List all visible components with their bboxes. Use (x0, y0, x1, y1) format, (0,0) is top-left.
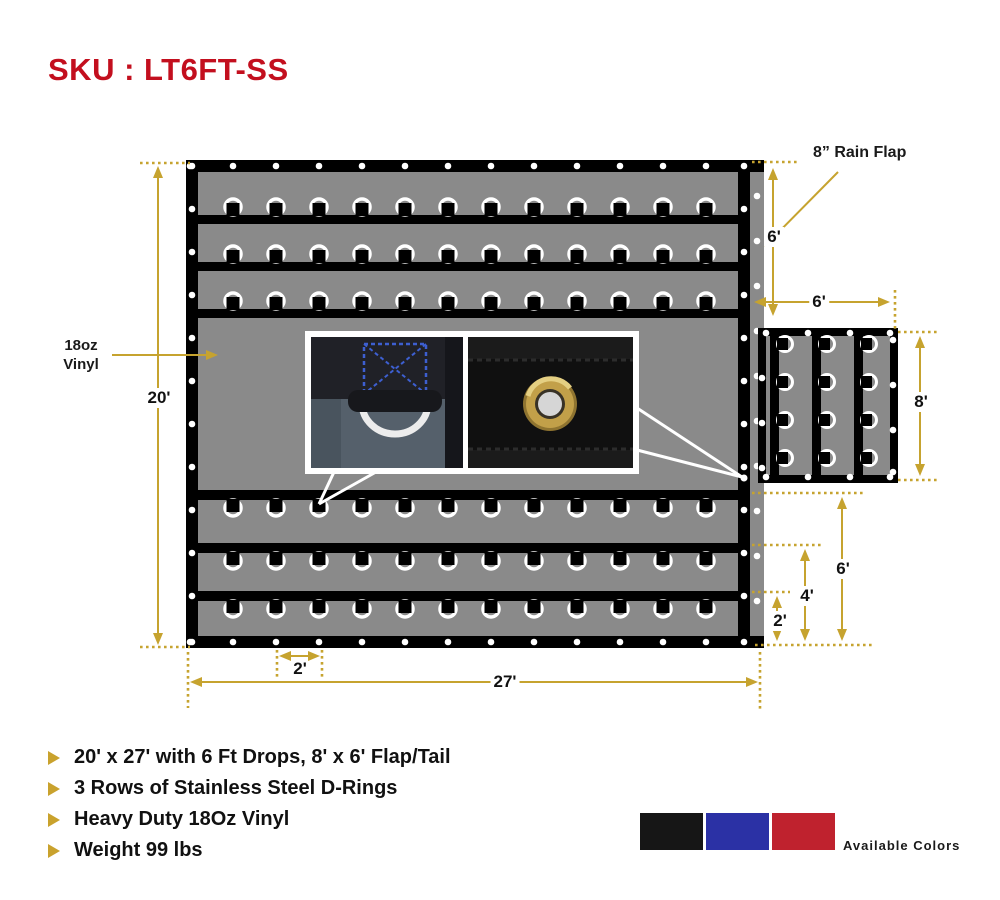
grommet (316, 639, 323, 646)
d-ring-tab (270, 552, 283, 565)
d-ring-tab (614, 203, 627, 216)
feature-text: 3 Rows of Stainless Steel D-Rings (74, 777, 397, 800)
grommet (847, 474, 854, 481)
grommet (741, 163, 748, 170)
dim-ring-spacing: 2' (290, 659, 310, 679)
grommet (741, 464, 748, 471)
grommet (754, 283, 761, 290)
d-ring-tab (700, 552, 713, 565)
grommet (741, 550, 748, 557)
grommet (890, 337, 897, 344)
d-ring-tab (528, 600, 541, 613)
grommet (189, 593, 196, 600)
d-ring-tab (571, 203, 584, 216)
grommet (230, 163, 237, 170)
arrowhead (915, 336, 925, 348)
d-ring-tab (700, 297, 713, 310)
d-ring-tab (270, 297, 283, 310)
grommet (189, 550, 196, 557)
grommet (741, 475, 748, 482)
vinyl-label-line1: 18oz (44, 336, 118, 355)
feature-item: Heavy Duty 18Oz Vinyl (48, 804, 451, 835)
grommet (359, 639, 366, 646)
dim-flap-height: 8' (911, 392, 931, 412)
grommet (890, 427, 897, 434)
d-ring-tab (485, 600, 498, 613)
grommet (189, 507, 196, 514)
d-ring-tab (777, 452, 788, 464)
d-ring-tab (270, 499, 283, 512)
d-ring-tab (399, 250, 412, 263)
d-ring-tab (657, 600, 670, 613)
grommet (703, 639, 710, 646)
grommet (741, 421, 748, 428)
feature-item: 3 Rows of Stainless Steel D-Rings (48, 773, 451, 804)
grommet (741, 335, 748, 342)
arrowhead (800, 549, 810, 561)
d-ring-tab (356, 297, 369, 310)
grommet (359, 163, 366, 170)
vinyl-label: 18oz Vinyl (44, 336, 118, 374)
d-ring-tab (313, 250, 326, 263)
d-ring-tab (657, 499, 670, 512)
feature-text: 20' x 27' with 6 Ft Drops, 8' x 6' Flap/… (74, 746, 451, 769)
grommet (531, 639, 538, 646)
d-ring-tab (861, 376, 872, 388)
d-ring-tab (227, 600, 240, 613)
dim-flap-drop: 6' (764, 227, 784, 247)
d-ring-tab (861, 452, 872, 464)
d-ring-tab (227, 203, 240, 216)
d-ring-tab (442, 600, 455, 613)
feature-text: Weight 99 lbs (74, 839, 203, 862)
d-ring-tab (528, 297, 541, 310)
grommet (741, 249, 748, 256)
arrowhead (768, 168, 778, 180)
d-ring-tab (485, 203, 498, 216)
d-ring-tab (356, 250, 369, 263)
grommet (189, 421, 196, 428)
product-diagram-page: SKU : LT6FT-SS (0, 0, 1000, 900)
grommet (741, 593, 748, 600)
rain-flap-label: 8” Rain Flap (813, 144, 906, 162)
grommet (887, 330, 894, 337)
grommet (754, 193, 761, 200)
d-ring-tab (227, 250, 240, 263)
arrowhead (878, 297, 890, 307)
d-ring-tab (485, 250, 498, 263)
d-ring-tab (571, 552, 584, 565)
grommet (617, 639, 624, 646)
d-ring-tab (614, 250, 627, 263)
d-ring-tab (528, 499, 541, 512)
d-ring-tab (657, 203, 670, 216)
arrowhead (153, 633, 163, 645)
arrow-bullet-icon (48, 782, 60, 796)
grommet-photo (468, 337, 633, 468)
grommet (741, 378, 748, 385)
grommet (617, 163, 624, 170)
d-ring-tab (399, 203, 412, 216)
strip (198, 262, 738, 271)
d-ring-tab (356, 203, 369, 216)
arrowhead (768, 304, 778, 316)
vinyl-label-line2: Vinyl (44, 355, 118, 374)
d-ring-tab (313, 203, 326, 216)
feature-item: 20' x 27' with 6 Ft Drops, 8' x 6' Flap/… (48, 742, 451, 773)
arrow-bullet-icon (48, 813, 60, 827)
d-ring-tab (313, 552, 326, 565)
d-ring-tab (485, 499, 498, 512)
d-ring-tab (700, 600, 713, 613)
d-ring-tab (700, 203, 713, 216)
d-ring-tab (528, 250, 541, 263)
d-ring-tab (819, 452, 830, 464)
grommet (574, 163, 581, 170)
d-ring-tab (227, 297, 240, 310)
d-ring-tab (270, 250, 283, 263)
arrowhead (190, 677, 202, 687)
d-ring-tab (861, 338, 872, 350)
strip (198, 490, 738, 500)
d-ring-tab (399, 499, 412, 512)
d-ring-tab (571, 600, 584, 613)
grommet (703, 163, 710, 170)
d-ring-tab (442, 203, 455, 216)
arrowhead (800, 629, 810, 641)
grommet (763, 474, 770, 481)
grommet (273, 639, 280, 646)
d-ring-tab (356, 499, 369, 512)
feature-item: Weight 99 lbs (48, 835, 451, 866)
dim-tarp-width: 27' (491, 672, 520, 692)
arrowhead (772, 596, 782, 608)
strip (198, 215, 738, 224)
d-ring-tab (356, 600, 369, 613)
d-ring-tab (442, 297, 455, 310)
d-ring-tab (777, 376, 788, 388)
d-ring-tab (356, 552, 369, 565)
d-ring-tab (861, 414, 872, 426)
dim-drop-row-low: 2' (770, 611, 790, 631)
d-ring-tab (485, 297, 498, 310)
grommet (741, 639, 748, 646)
d-ring-tab (571, 250, 584, 263)
strip (198, 309, 738, 318)
d-ring-tab (528, 203, 541, 216)
grommet (273, 163, 280, 170)
grommet (660, 163, 667, 170)
d-ring-tab (442, 552, 455, 565)
swatch-red (772, 813, 835, 850)
arrowhead (746, 677, 758, 687)
dring-photo (311, 337, 463, 468)
d-ring-tab (614, 297, 627, 310)
d-ring-tab (819, 338, 830, 350)
grommet (763, 330, 770, 337)
arrowhead (153, 166, 163, 178)
d-ring-tab (819, 376, 830, 388)
d-ring-tab (227, 499, 240, 512)
grommet (189, 378, 196, 385)
grommet (189, 464, 196, 471)
tarp-border-right (738, 160, 750, 648)
arrowhead (837, 629, 847, 641)
feature-list: 20' x 27' with 6 Ft Drops, 8' x 6' Flap/… (48, 742, 451, 866)
grommet (741, 206, 748, 213)
grommet (805, 330, 812, 337)
d-ring-tab (657, 250, 670, 263)
grommet (445, 639, 452, 646)
d-ring-tab (571, 499, 584, 512)
grommet (754, 508, 761, 515)
grommet (890, 469, 897, 476)
swatch-black (640, 813, 703, 850)
grommet (574, 639, 581, 646)
dim-flap-width: 6' (809, 292, 829, 312)
d-ring-tab (700, 250, 713, 263)
arrowhead (837, 497, 847, 509)
arrowhead (308, 651, 320, 661)
color-swatches (640, 813, 838, 850)
d-ring-tab (270, 203, 283, 216)
d-ring-tab (442, 250, 455, 263)
d-ring-tab (227, 552, 240, 565)
feature-text: Heavy Duty 18Oz Vinyl (74, 808, 289, 831)
d-ring-tab (399, 552, 412, 565)
d-ring-tab (571, 297, 584, 310)
d-ring-tab (777, 414, 788, 426)
grommet (402, 163, 409, 170)
dim-drop-row-mid: 4' (797, 586, 817, 606)
grommet (445, 163, 452, 170)
grommet (759, 420, 766, 427)
arrowhead (279, 651, 291, 661)
grommet (189, 249, 196, 256)
d-ring-tab (485, 552, 498, 565)
tarp-border-left (186, 160, 198, 648)
grommet (741, 507, 748, 514)
d-ring-tab (700, 499, 713, 512)
grommet (754, 598, 761, 605)
available-colors-label: Available Colors (843, 838, 960, 853)
arrowhead (915, 464, 925, 476)
dim-tarp-height: 20' (145, 388, 174, 408)
grommet (759, 375, 766, 382)
d-ring-tab (313, 600, 326, 613)
grommet (189, 206, 196, 213)
grommet (754, 238, 761, 245)
d-ring-tab (657, 552, 670, 565)
grommet (754, 553, 761, 560)
arrow-bullet-icon (48, 844, 60, 858)
d-ring-tab (313, 297, 326, 310)
swatch-blue (706, 813, 769, 850)
d-ring-tab (614, 600, 627, 613)
dim-drop-row-top: 6' (833, 559, 853, 579)
d-ring-tab (399, 600, 412, 613)
d-ring-tab (777, 338, 788, 350)
grommet (189, 335, 196, 342)
d-ring-tab (270, 600, 283, 613)
grommet (230, 639, 237, 646)
grommet (189, 639, 196, 646)
grommet (741, 292, 748, 299)
grommet (531, 163, 538, 170)
grommet (488, 163, 495, 170)
grommet (488, 639, 495, 646)
d-ring-tab (528, 552, 541, 565)
grommet (890, 382, 897, 389)
d-ring-tab (399, 297, 412, 310)
grommet (402, 639, 409, 646)
strip (198, 543, 738, 553)
d-ring-tab (657, 297, 670, 310)
grommet (189, 292, 196, 299)
d-ring-tab (614, 552, 627, 565)
grommet (759, 465, 766, 472)
grommet (660, 639, 667, 646)
strip (198, 591, 738, 601)
d-ring-tab (614, 499, 627, 512)
d-ring-tab (819, 414, 830, 426)
grommet (847, 330, 854, 337)
d-ring-tab (442, 499, 455, 512)
grommet (805, 474, 812, 481)
inset-photos (305, 331, 639, 474)
arrow-bullet-icon (48, 751, 60, 765)
grommet (316, 163, 323, 170)
